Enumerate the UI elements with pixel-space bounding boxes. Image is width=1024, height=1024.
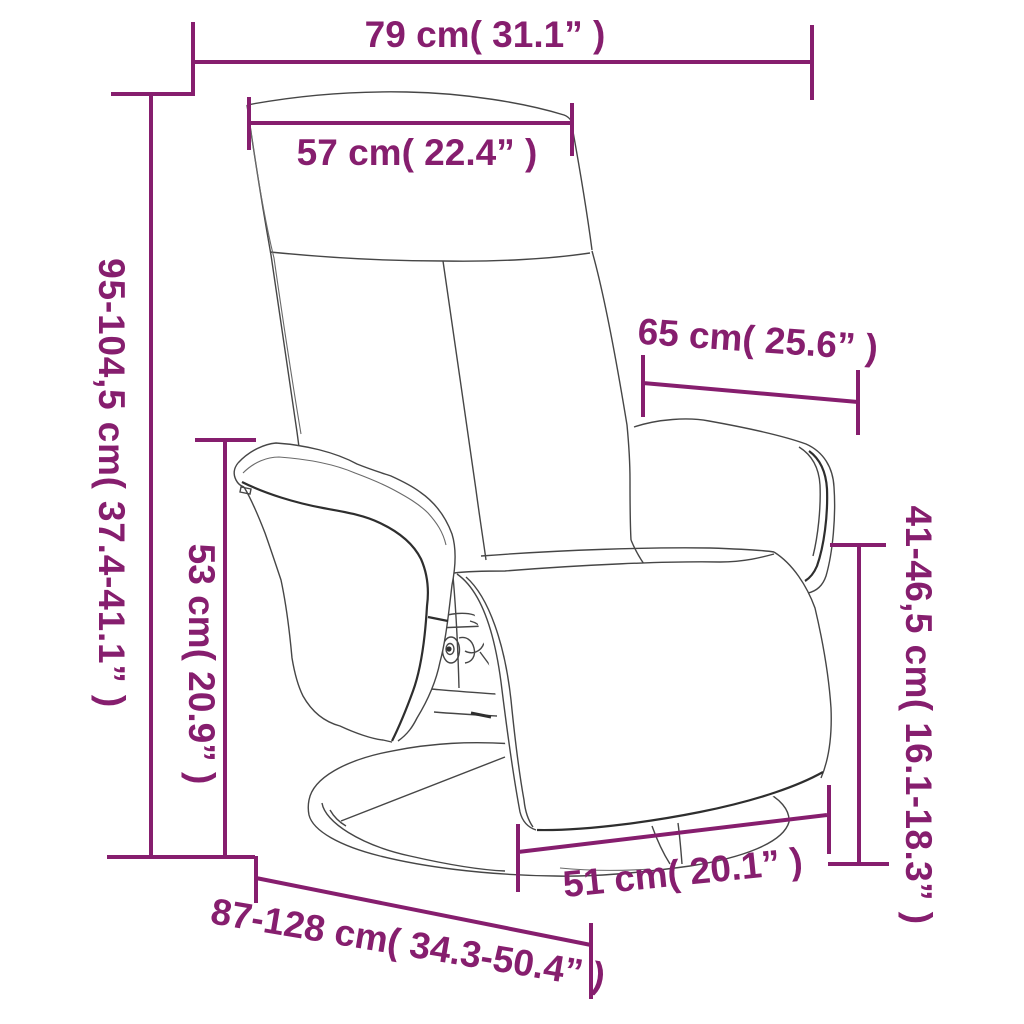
svg-text:95-104,5 cm( 37.4-41.1” ): 95-104,5 cm( 37.4-41.1” ) (91, 258, 132, 708)
svg-text:41-46,5 cm( 16.1-18.3” ): 41-46,5 cm( 16.1-18.3” ) (898, 506, 939, 925)
svg-text:79 cm( 31.1” ): 79 cm( 31.1” ) (365, 14, 606, 55)
svg-text:53 cm( 20.9” ): 53 cm( 20.9” ) (181, 544, 222, 785)
svg-text:57 cm( 22.4” ): 57 cm( 22.4” ) (297, 132, 538, 173)
